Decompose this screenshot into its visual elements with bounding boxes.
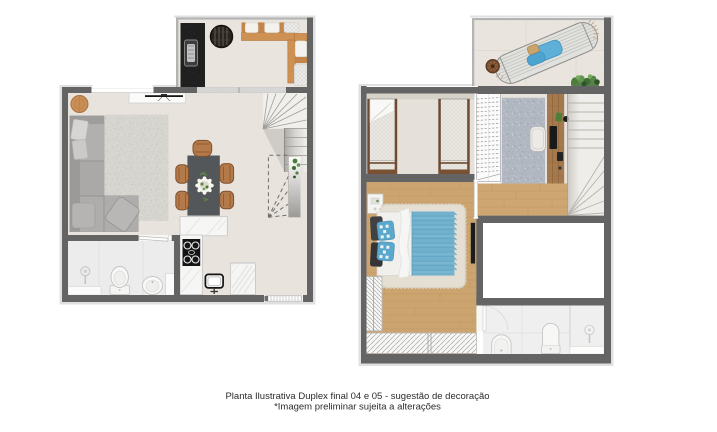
svg-text:*Imagem preliminar sujeita a a: *Imagem preliminar sujeita a alterações <box>274 402 441 413</box>
svg-text:Planta Ilustrativa Duplex fina: Planta Ilustrativa Duplex final 04 e 05 … <box>225 391 489 402</box>
